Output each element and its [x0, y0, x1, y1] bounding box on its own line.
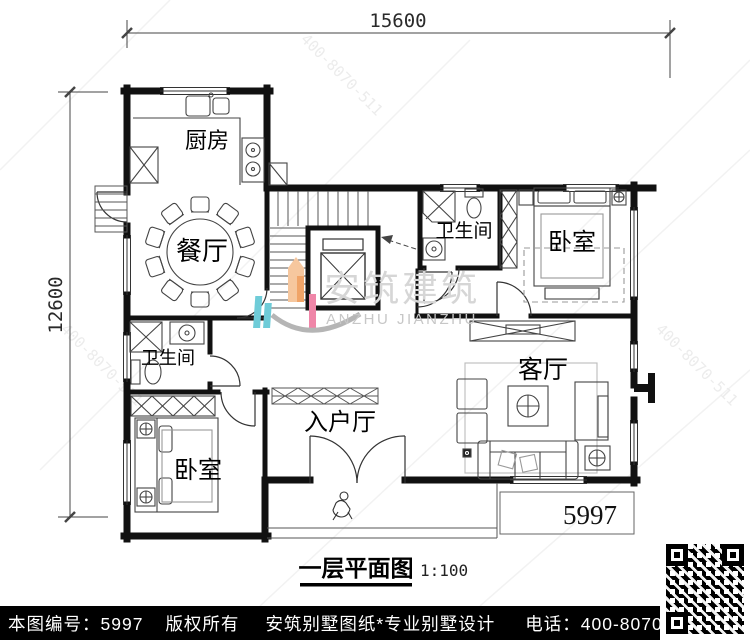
footer-brand: 安筑别墅图纸*专业别墅设计 [265, 611, 495, 636]
room-label-bath-lower: 卫生间 [141, 348, 195, 368]
qr-finder-icon [666, 544, 688, 566]
dimension-width-label: 15600 [369, 10, 426, 32]
living-furniture [457, 321, 610, 479]
room-label-kitchen: 厨房 [185, 128, 229, 153]
footer-sheet-number: 本图编号：5997 [8, 611, 143, 636]
room-label-entry: 入户厅 [304, 409, 376, 436]
footer-bar: 本图编号：5997 版权所有 安筑别墅图纸*专业别墅设计 电话：400-8070… [0, 606, 750, 640]
drawing-title-text: 一层平面图 [299, 556, 414, 581]
qr-pattern [666, 544, 744, 634]
room-label-dining: 餐厅 [176, 237, 228, 266]
floor-plan-sheet: 400-8070-511 400-8070-511 400-8070-511 1… [0, 0, 750, 640]
room-label-living: 客厅 [518, 356, 568, 384]
side-steps [95, 186, 127, 232]
watermark-cn: 安筑建筑 [324, 269, 480, 309]
phone-watermark: 400-8070-511 [297, 30, 386, 119]
drawing-title: 一层平面图 1:100 [299, 556, 469, 587]
dimension-height-label: 12600 [45, 276, 67, 333]
footer-copyright: 版权所有 [165, 611, 239, 636]
person-figure [333, 492, 352, 520]
room-label-bath-upper: 卫生间 [435, 220, 492, 242]
qr-code [660, 536, 750, 640]
qr-finder-icon [722, 544, 744, 566]
entry-furniture [272, 388, 378, 404]
floor-plan-drawing: 400-8070-511 400-8070-511 400-8070-511 1… [0, 0, 750, 606]
room-label-bedroom-upper: 卧室 [548, 229, 596, 256]
plan-number: 5997 [563, 500, 617, 530]
phone-watermark: 400-8070-511 [652, 320, 741, 409]
bedroom-lower-furniture [131, 396, 218, 512]
qr-finder-icon [666, 612, 688, 634]
drawing-scale: 1:100 [420, 561, 468, 580]
room-label-bedroom-lower: 卧室 [174, 457, 222, 484]
stair-direction-arrow [381, 235, 416, 249]
watermark-en: ANZHU JIANZHU [326, 311, 478, 328]
